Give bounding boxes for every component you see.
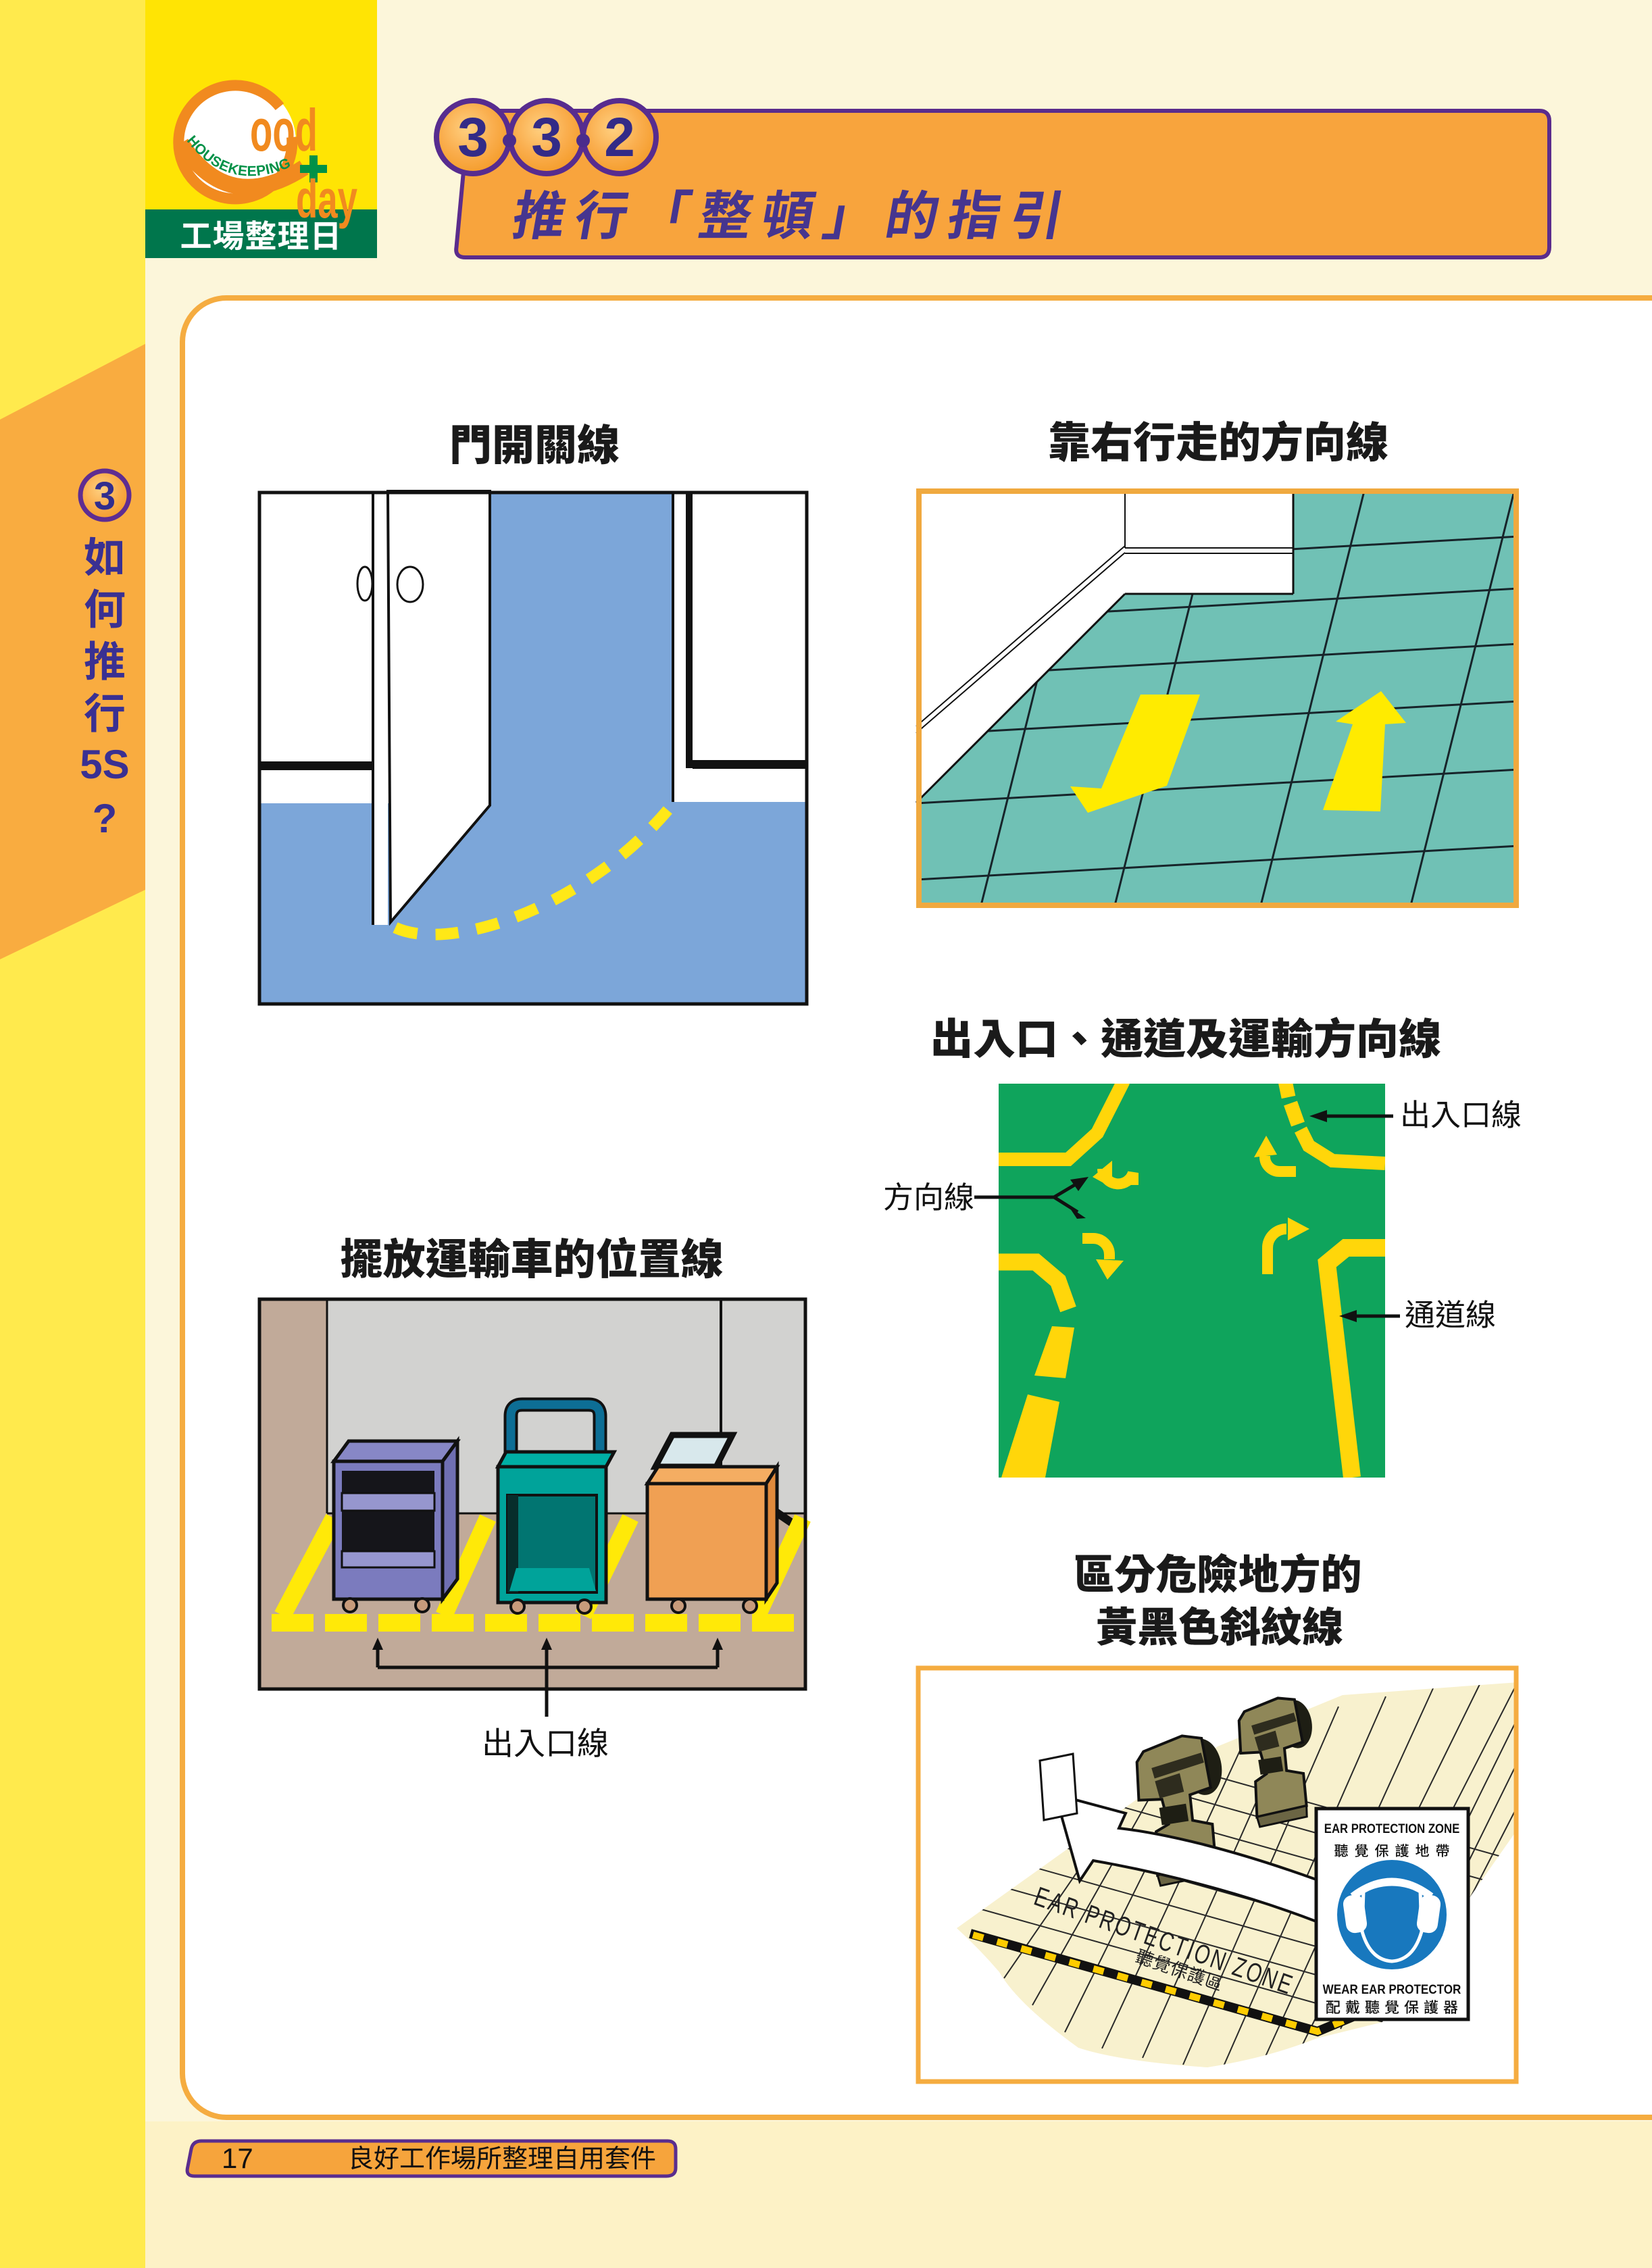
svg-text:17: 17 <box>222 2142 253 2174</box>
svg-text:?: ? <box>93 796 118 841</box>
svg-text:5S: 5S <box>80 742 129 787</box>
svg-text:3: 3 <box>531 107 562 168</box>
svg-text:day: day <box>296 170 357 230</box>
svg-text:ood: ood <box>250 97 318 164</box>
svg-text:2: 2 <box>604 107 635 168</box>
svg-text:3: 3 <box>457 107 489 168</box>
svg-text:WEAR EAR PROTECTOR: WEAR EAR PROTECTOR <box>1323 1982 1461 1996</box>
svg-text:EAR PROTECTION ZONE: EAR PROTECTION ZONE <box>1324 1821 1459 1836</box>
svg-text:3: 3 <box>94 474 116 518</box>
